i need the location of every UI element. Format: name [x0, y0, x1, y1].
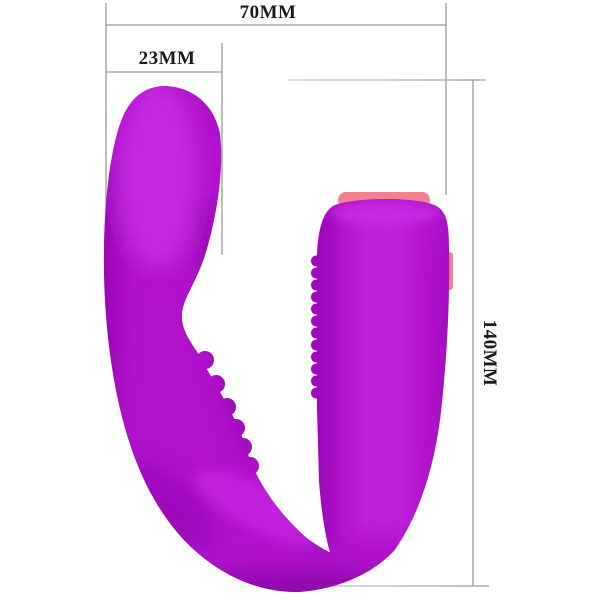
right-arm-right-shadow [440, 210, 466, 510]
right-arm-highlight [352, 215, 414, 535]
width-dimension-label: 70MM [240, 2, 297, 24]
height-dimension-label: 140MM [478, 320, 500, 387]
left-arm-left-shadow [85, 130, 119, 470]
body-base-fill [0, 0, 600, 600]
right-arm-left-shadow [306, 205, 334, 545]
head-highlight [118, 80, 198, 270]
cap-top-highlight [330, 201, 440, 225]
product-illustration [0, 0, 600, 600]
bottom-shadow [125, 570, 445, 600]
head-width-dimension-label: 23MM [139, 48, 196, 70]
product-dimension-diagram: 70MM 23MM 140MM [0, 0, 600, 600]
product-body [0, 0, 600, 600]
